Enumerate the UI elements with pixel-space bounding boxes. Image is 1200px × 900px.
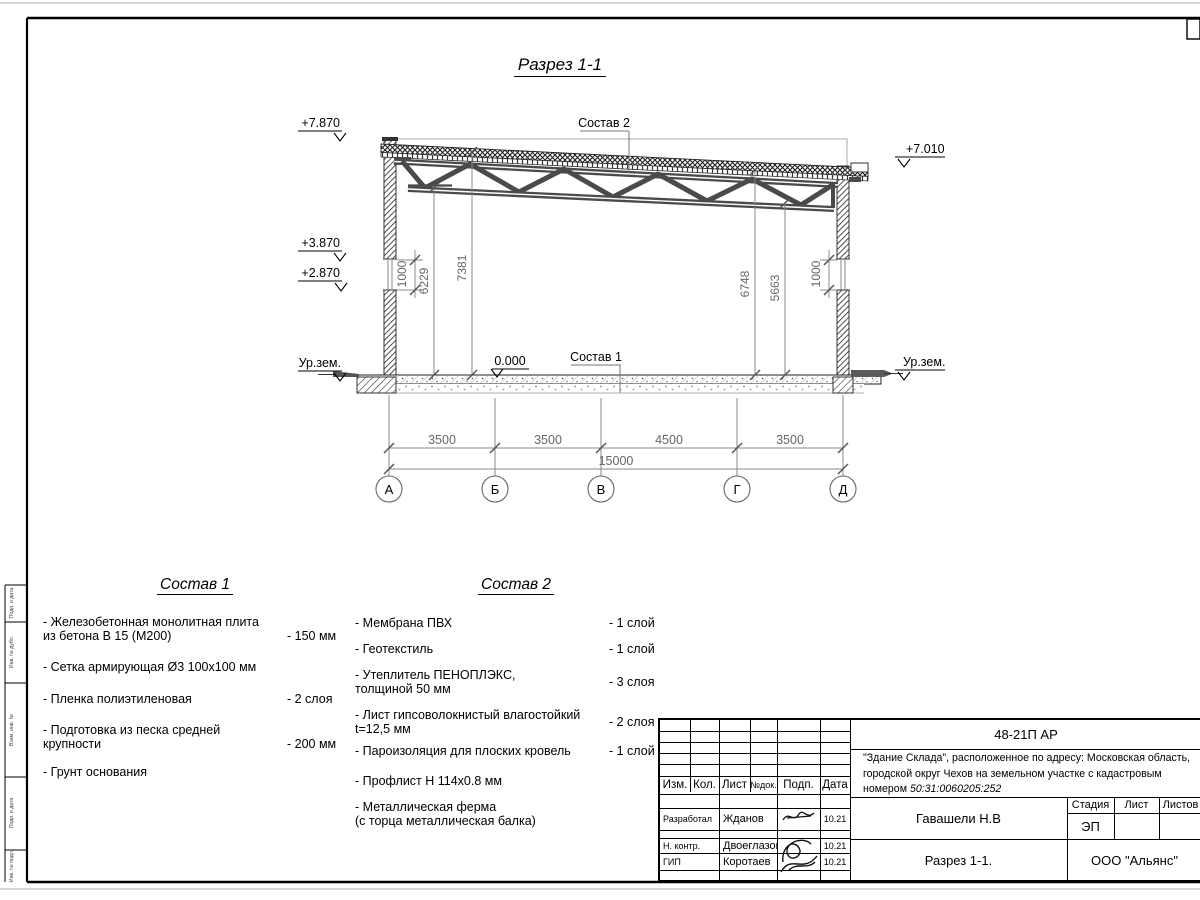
- item-value: - 3 слоя: [609, 675, 669, 689]
- sheet-name: Разрез 1-1.: [850, 839, 1067, 882]
- row-name: Двоеглазов: [723, 838, 777, 853]
- dim-15000: 15000: [599, 454, 634, 468]
- list-item: - Профлист Н 114х0.8 мм: [355, 774, 669, 788]
- cadastral-number: 50:31:0060205:252: [910, 783, 1001, 795]
- stage-label: Стадия: [1067, 797, 1114, 813]
- sand-bed: [368, 384, 864, 393]
- item-name: - Пароизоляция для плоских кровель: [355, 744, 609, 758]
- vertical-dimension-labels: 1000 6229 7381 6748 5663 1000: [395, 254, 823, 301]
- ground-label-left: Ур.зем.: [299, 356, 341, 370]
- col-data: Дата: [820, 776, 850, 794]
- level-zero: 0.000: [494, 354, 525, 368]
- list-item: - Грунт основания: [43, 765, 345, 779]
- item-value: - 1 слой: [609, 616, 669, 630]
- description-line: номером 50:31:0060205:252: [863, 782, 1198, 798]
- item-name: - Пленка полиэтиленовая: [43, 692, 287, 706]
- item-name: - Мембрана ПВХ: [355, 616, 609, 630]
- left-wall: [382, 137, 398, 377]
- item-value: - 1 слой: [609, 642, 669, 656]
- list-item: - Пленка полиэтиленовая - 2 слоя: [43, 692, 345, 706]
- corner-stamp-box: [1187, 19, 1200, 39]
- dim-1000-left: 1000: [395, 260, 409, 287]
- margin-label: Инв. № дубл.: [9, 636, 15, 668]
- sostav1-list: - Железобетонная монолитная плита из бет…: [43, 615, 345, 779]
- left-footing: [357, 377, 396, 393]
- row-name: Жданов: [723, 808, 777, 830]
- margin-stamp-labels: Подп. и дата Инв. № дубл. Взам. инв. № П…: [9, 588, 15, 883]
- axis-a: А: [385, 482, 394, 497]
- sostav2-list: - Мембрана ПВХ - 1 слой - Геотекстиль - …: [355, 616, 669, 828]
- sostav1-heading: Состав 1: [95, 576, 295, 594]
- dim-1000-right: 1000: [809, 260, 823, 287]
- list-item: - Подготовка из песка средней крупности …: [43, 723, 345, 751]
- item-name: - Лист гипсоволокнистый влагостойкий t=1…: [355, 708, 609, 736]
- dim-6748: 6748: [738, 270, 752, 297]
- row-date: 10.21: [820, 838, 850, 853]
- dim-4500: 4500: [655, 433, 683, 447]
- item-name: - Железобетонная монолитная плита из бет…: [43, 615, 287, 643]
- item-name: - Грунт основания: [43, 765, 287, 779]
- item-name: - Утеплитель ПЕНОПЛЭКС, толщиной 50 мм: [355, 668, 609, 696]
- level-7010: +7.010: [906, 142, 945, 156]
- bottom-dimensions: 3500 3500 4500 3500 15000 А Б В Г Д: [376, 395, 856, 502]
- item-value: - 150 мм: [287, 629, 345, 643]
- project-description: "Здание Склада", расположенное по адресу…: [863, 751, 1198, 798]
- page-title: Разрез 1-1: [455, 55, 665, 75]
- list-item: - Геотекстиль - 1 слой: [355, 642, 669, 656]
- sheets-label: Листов: [1159, 797, 1200, 813]
- axis-b: Б: [491, 482, 500, 497]
- col-ndoc: №док.: [750, 776, 777, 794]
- list-item: - Пароизоляция для плоских кровель - 1 с…: [355, 744, 669, 758]
- row-date: 10.21: [820, 853, 850, 870]
- item-name: - Профлист Н 114х0.8 мм: [355, 774, 609, 788]
- stage-value: ЭП: [1067, 813, 1114, 839]
- dim-5663: 5663: [768, 274, 782, 301]
- sheet-label: Лист: [1114, 797, 1159, 813]
- margin-label: Подп. и дата: [9, 588, 15, 619]
- row-role: Н. контр.: [663, 838, 719, 853]
- row-date: 10.21: [820, 808, 850, 830]
- description-prefix: номером: [863, 783, 910, 795]
- description-line: городской округ Чехов на земельном участ…: [863, 767, 1198, 783]
- floor-slab: [318, 370, 903, 393]
- right-wall: [836, 166, 850, 377]
- roof-edge-stub: [849, 177, 861, 182]
- col-izm: Изм.: [660, 776, 690, 794]
- axis-bubbles: А Б В Г Д: [376, 476, 856, 502]
- right-window-band: [836, 259, 850, 290]
- axis-d: Д: [839, 482, 848, 497]
- callout-sostav2: Состав 2: [578, 116, 630, 130]
- item-value: - 2 слоя: [287, 692, 345, 706]
- level-2870: +2.870: [301, 266, 340, 280]
- col-kol: Кол.: [690, 776, 719, 794]
- margin-label: Подп. и дата: [9, 798, 15, 829]
- col-podp: Подп.: [777, 776, 820, 794]
- dim-6229: 6229: [417, 267, 431, 294]
- company-name: ООО "Альянс": [1067, 839, 1200, 882]
- signature-zhdanov: [783, 812, 814, 820]
- item-value: - 200 мм: [287, 737, 345, 751]
- title-block: Изм. Кол. Лист №док. Подп. Дата Разработ…: [658, 718, 1200, 882]
- drawing-sheet: { "page": { "drawing_title": "Разрез 1-1…: [0, 0, 1200, 900]
- ground-label-right: Ур.зем.: [903, 355, 945, 369]
- sostav1-heading-text: Состав 1: [157, 576, 233, 595]
- dim-3500-3: 3500: [776, 433, 804, 447]
- list-item: - Железобетонная монолитная плита из бет…: [43, 615, 345, 643]
- left-parapet-cap: [382, 137, 398, 141]
- level-3870: +3.870: [301, 236, 340, 250]
- item-name: - Металлическая ферма (с торца металличе…: [355, 800, 609, 828]
- page-title-text: Разрез 1-1: [514, 55, 606, 77]
- list-item: - Утеплитель ПЕНОПЛЭКС, толщиной 50 мм -…: [355, 668, 669, 696]
- col-list: Лист: [719, 776, 750, 794]
- item-name: - Сетка армирующая Ø3 100х100 мм: [43, 660, 287, 674]
- axis-g: Г: [733, 482, 740, 497]
- list-item: - Металлическая ферма (с торца металличе…: [355, 800, 669, 828]
- axis-v: В: [597, 482, 606, 497]
- dim-3500-1: 3500: [428, 433, 456, 447]
- level-7870: +7.870: [301, 116, 340, 130]
- dim-7381: 7381: [455, 254, 469, 281]
- callout-sostav1: Состав 1: [570, 350, 622, 364]
- list-item: - Лист гипсоволокнистый влагостойкий t=1…: [355, 708, 669, 736]
- item-name: - Геотекстиль: [355, 642, 609, 656]
- margin-label: Взам. инв. №: [9, 713, 15, 746]
- row-role: ГИП: [663, 853, 719, 870]
- signatures: [777, 804, 820, 878]
- row-name: Коротаев: [723, 853, 777, 870]
- sostav2-heading-text: Состав 2: [478, 576, 554, 595]
- doc-code: 48-21П АР: [850, 720, 1200, 749]
- list-item: - Мембрана ПВХ - 1 слой: [355, 616, 669, 630]
- list-item: - Сетка армирующая Ø3 100х100 мм: [43, 660, 345, 674]
- roof-fascia: [851, 163, 868, 172]
- row-role: Разработал: [663, 808, 719, 830]
- item-name: - Подготовка из песка средней крупности: [43, 723, 287, 751]
- signature-double: [781, 840, 817, 872]
- author-name: Гавашели Н.В: [850, 797, 1067, 839]
- margin-label: Инв. № подл.: [9, 850, 15, 882]
- sostav2-heading: Состав 2: [416, 576, 616, 594]
- right-footing: [833, 377, 853, 393]
- description-line: "Здание Склада", расположенное по адресу…: [863, 751, 1198, 767]
- dim-3500-2: 3500: [534, 433, 562, 447]
